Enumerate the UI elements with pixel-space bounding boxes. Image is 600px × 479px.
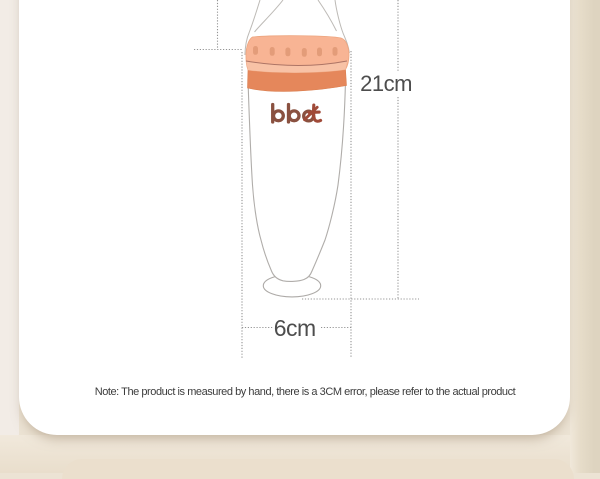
svg-text:6cm: 6cm xyxy=(274,315,316,341)
svg-text:21cm: 21cm xyxy=(360,71,412,96)
